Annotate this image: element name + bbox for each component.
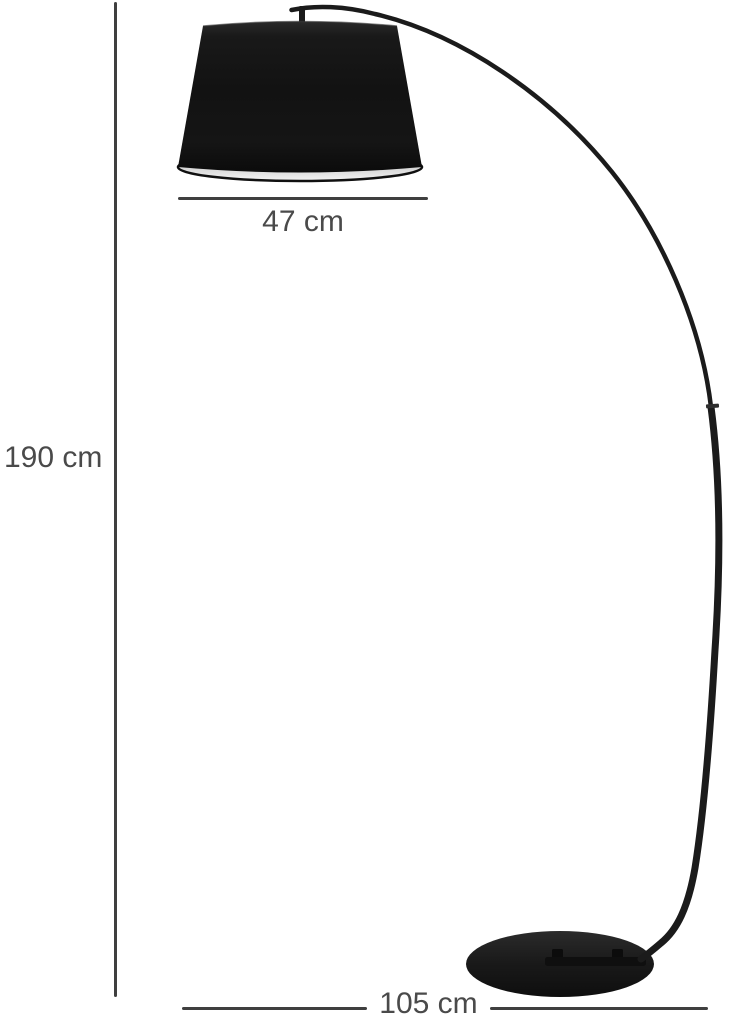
base-width-dimension-label: 105 cm <box>367 989 490 1019</box>
product-dimension-figure: 190 cm 47 cm 105 cm <box>0 0 729 1020</box>
shade-width-dimension-line <box>178 197 428 200</box>
shade-width-dimension-label: 47 cm <box>178 207 428 237</box>
base-width-dimension-line-left <box>182 1007 367 1010</box>
pole-joint <box>706 404 719 409</box>
height-dimension-line <box>114 2 117 997</box>
height-dimension-label: 190 cm <box>4 443 102 473</box>
lamp-shade <box>178 22 422 173</box>
base-width-dimension-line-right <box>490 1007 708 1010</box>
lamp-illustration <box>0 0 729 1020</box>
